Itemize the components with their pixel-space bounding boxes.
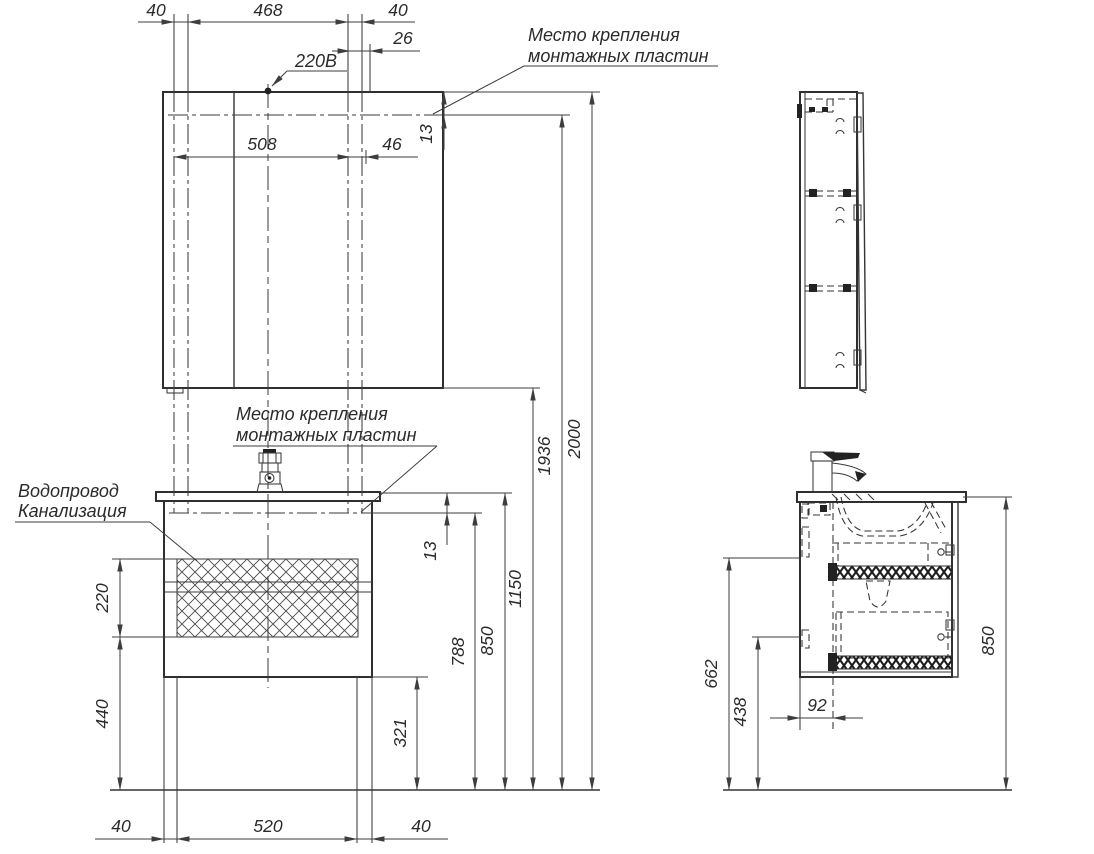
drawer-slide-top bbox=[830, 566, 952, 579]
dim-drain-wall-offset: 92 bbox=[807, 695, 827, 715]
mount-note-mid-line2: монтажных пластин bbox=[236, 425, 417, 445]
power-label: 220В bbox=[294, 51, 337, 71]
dim-top-offset: 26 bbox=[392, 28, 413, 48]
annotations: 220В Место крепления монтажных пластин М… bbox=[15, 25, 718, 561]
vanity-side bbox=[723, 452, 1012, 790]
technical-zone-hatch bbox=[177, 559, 358, 637]
water-note-line1: Водопровод bbox=[18, 481, 119, 501]
faucet-side bbox=[811, 452, 866, 492]
dim-top-margin-left: 40 bbox=[146, 0, 166, 20]
siphon bbox=[866, 581, 890, 607]
water-note-line2: Канализация bbox=[18, 501, 127, 521]
counter-side bbox=[797, 492, 966, 502]
dim-vanity-plate-height: 788 bbox=[448, 637, 468, 666]
dim-bottom-margin-right: 40 bbox=[411, 816, 431, 836]
dim-counter-height: 850 bbox=[477, 626, 497, 655]
dim-side-counter-height: 850 bbox=[978, 626, 998, 655]
dim-vanity-plate-inset: 13 bbox=[420, 541, 440, 561]
dim-tech-zone-height: 220 bbox=[92, 583, 112, 613]
mirror-door-profile bbox=[857, 93, 866, 390]
dimensions-top: 40 468 40 26 508 46 13 bbox=[138, 0, 444, 164]
mount-note-top-line1: Место крепления bbox=[528, 25, 680, 45]
dim-top-span: 468 bbox=[253, 0, 282, 20]
dim-bottom-span: 520 bbox=[253, 816, 282, 836]
dim-side-zone-bottom-height: 438 bbox=[730, 697, 750, 726]
dim-plate-span: 508 bbox=[247, 134, 276, 154]
shelf-lines bbox=[805, 189, 857, 292]
wall-bracket-mark bbox=[797, 104, 802, 118]
mount-note-top-line2: монтажных пластин bbox=[528, 46, 709, 66]
power-point-dot bbox=[265, 88, 272, 95]
dim-plate-right-offset: 46 bbox=[382, 134, 402, 154]
dim-bottom-margin-left: 40 bbox=[111, 816, 131, 836]
dim-tech-zone-floor-offset: 440 bbox=[92, 699, 112, 728]
drawing-canvas: 40 468 40 26 508 46 13 13 788 850 bbox=[0, 0, 1094, 854]
mirror-cabinet-side bbox=[797, 92, 866, 393]
faucet-front bbox=[257, 449, 283, 492]
dim-mirror-top-height: 2000 bbox=[564, 419, 584, 459]
dim-mirror-plate-inset: 13 bbox=[416, 124, 436, 144]
dim-mirror-bottom-height: 1150 bbox=[505, 570, 525, 608]
dim-vanity-bottom-clearance: 321 bbox=[390, 718, 410, 747]
dim-top-margin-right: 40 bbox=[388, 0, 408, 20]
installation-drawing: 40 468 40 26 508 46 13 13 788 850 bbox=[0, 0, 1094, 854]
mount-note-mid-line1: Место крепления bbox=[236, 404, 388, 424]
dim-side-zone-top-height: 662 bbox=[701, 659, 721, 688]
dim-mirror-plate-height: 1936 bbox=[534, 436, 554, 475]
dimensions-side: 662 438 92 850 bbox=[701, 497, 1012, 790]
drawer-slide-bottom bbox=[830, 656, 952, 669]
